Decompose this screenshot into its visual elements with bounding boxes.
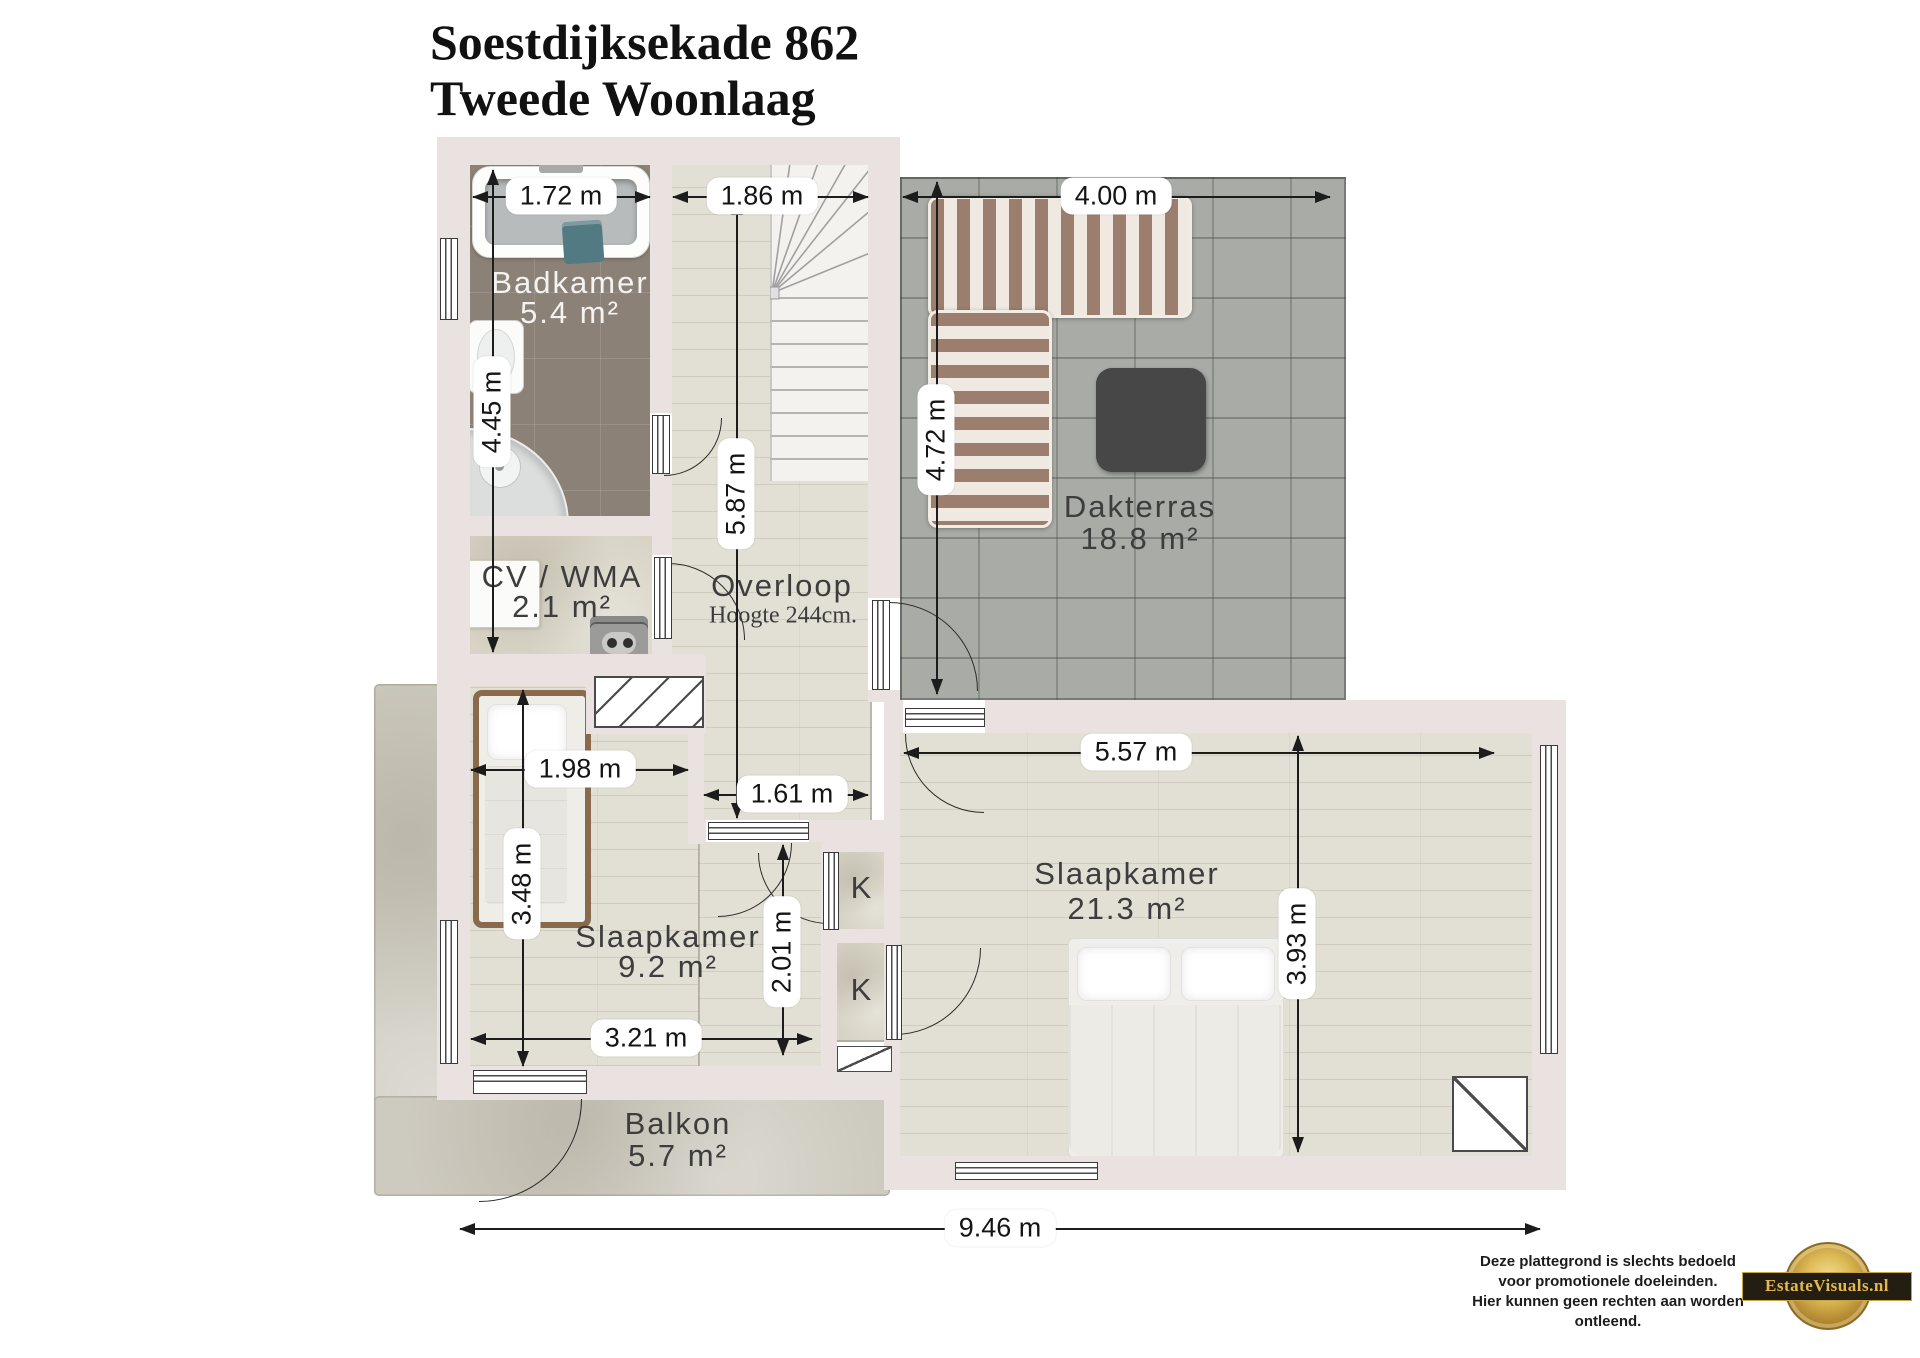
dim-badkamer-cv-hoogte: 4.45 m [474,357,511,468]
wall-slaapkamer-groot-top [884,700,1566,733]
disclaimer: Deze plattegrond is slechts bedoeld voor… [1468,1252,1748,1332]
bathtub-towel [562,220,605,265]
dim-sla-groot-breedte: 5.57 m [1081,734,1192,771]
washing-machine-knob-1 [607,638,617,648]
slaapkamer-klein-area: 9.2 m² [618,949,718,985]
door-overloop [708,822,809,840]
window-slaapkamer-groot-onder [955,1162,1098,1180]
slaapkamer-groot-area: 21.3 m² [1067,891,1186,927]
title-address: Soestdijksekade 862 [430,14,859,70]
title-floor: Tweede Woonlaag [430,70,859,126]
washing-machine-knob-2 [623,638,633,648]
dakterras-area: 18.8 m² [1080,521,1199,557]
double-bed [1068,938,1284,1158]
dim-badkamer-breedte: 1.72 m [506,178,617,215]
dakterras-label: Dakterras [1064,489,1216,525]
door-cv [654,557,672,639]
door-dakterras [872,600,890,690]
dim-sla-groot-hoogte: 3.93 m [1279,889,1316,1000]
overloop-height-note: Hoogte 244cm. [709,603,857,630]
dim-overloop-onder: 1.61 m [737,776,848,813]
dim-dakterras-breedte: 4.00 m [1061,178,1172,215]
niche-hatch-slaapkamer-groot [1452,1076,1528,1152]
balkon-label: Balkon [625,1106,732,1142]
door-kast-1 [823,852,839,930]
balkon-area: 5.7 m² [628,1138,728,1174]
skylight-hatch [594,676,704,728]
door-slaapkamer-groot [905,708,985,727]
dim-totaal-breedte: 9.46 m [945,1210,1056,1247]
wall-slaapkamer-groot-left [884,700,900,1160]
dimline-slaapkamer-groot-breedte [904,752,1494,754]
dim-sla-klein-breedte-boven: 1.98 m [525,751,636,788]
overloop-label: Overloop [711,568,853,604]
niche-hatch-kast [837,1046,892,1072]
dim-dakterras-hoogte: 4.72 m [918,385,955,496]
dim-sla-klein-breedte-onder: 3.21 m [591,1020,702,1057]
dim-sla-klein-hoogte: 3.48 m [504,829,541,940]
cv-wma-area: 2.1 m² [512,589,612,625]
double-bed-pillow-2 [1181,947,1275,1001]
dim-overloop-hoogte: 5.87 m [718,439,755,550]
disclaimer-line-3: Hier kunnen geen rechten aan worden ontl… [1468,1292,1748,1332]
door-badkamer [652,415,670,474]
estatevisuals-logo: EstateVisuals.nl [1742,1240,1910,1332]
terrace-table [1096,368,1206,472]
slaapkamer-groot-label: Slaapkamer [1034,856,1219,892]
disclaimer-line-1: Deze plattegrond is slechts bedoeld [1468,1252,1748,1272]
double-bed-blanket [1069,1005,1282,1156]
door-kast-2 [886,945,902,1040]
floorplan-canvas: 1.72 m 1.86 m 4.00 m 4.45 m 5.87 m 4.72 … [0,0,1920,1358]
window-badkamer [440,238,458,320]
disclaimer-line-2: voor promotionele doeleinden. [1468,1272,1748,1292]
dim-kast-hoogte: 2.01 m [764,897,801,1008]
door-balkon [473,1070,587,1094]
wall-kast-divider [835,929,890,943]
logo-text: EstateVisuals.nl [1742,1272,1912,1301]
badkamer-area: 5.4 m² [520,295,620,331]
dim-hal-breedte: 1.86 m [707,178,818,215]
kast-1-label: K [851,870,874,906]
window-slaapkamer-klein [440,920,458,1064]
double-bed-pillow-1 [1077,947,1171,1001]
page-title: Soestdijksekade 862 Tweede Woonlaag [430,14,859,126]
wall-badkamer-cv [437,516,670,536]
window-slaapkamer-groot-rechts [1540,745,1558,1054]
kast-2-label: K [851,972,874,1008]
